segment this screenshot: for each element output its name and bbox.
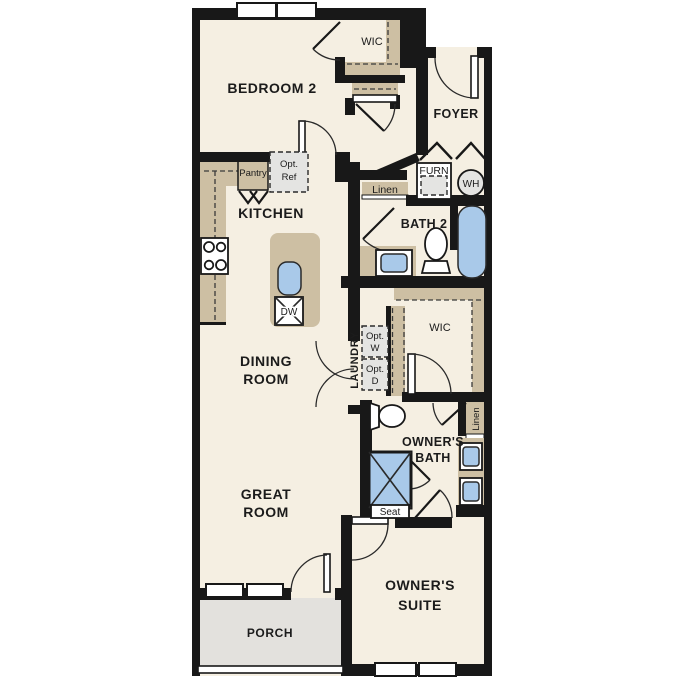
- label-pantry: Pantry: [239, 168, 267, 179]
- label-bedroom2: BEDROOM 2: [227, 80, 316, 96]
- label-porch: PORCH: [247, 626, 293, 640]
- label-foyer: FOYER: [433, 107, 478, 121]
- label-wic-bedroom: WIC: [361, 36, 382, 48]
- label-great-1: GREAT: [241, 486, 291, 502]
- stove-burner-4: [216, 260, 226, 270]
- label-suite-2: SUITE: [398, 597, 442, 613]
- porch-door-leaf: [324, 554, 330, 592]
- label-dishwasher: DW: [281, 307, 298, 318]
- window-great-a: [206, 584, 243, 597]
- label-bath2: BATH 2: [401, 217, 448, 231]
- wic-owners-shelf-top: [394, 288, 484, 300]
- label-obath-1: OWNER'S: [402, 435, 464, 449]
- label-dining-2: ROOM: [243, 371, 289, 387]
- bath2-sink: [381, 254, 407, 272]
- entry-door-leaf: [471, 56, 478, 98]
- hall-closet-door-leaf: [353, 95, 397, 102]
- bedroom2-door-leaf: [299, 121, 305, 155]
- wall-left: [192, 8, 200, 676]
- wall-linen-top: [355, 170, 407, 180]
- window-bedroom2-a: [237, 3, 276, 18]
- wic-owners-shelf-right: [472, 300, 484, 392]
- window-great-b: [247, 584, 283, 597]
- wall-vanity-south: [456, 505, 492, 517]
- floorplan-drawing: BEDROOM 2 WIC FOYER KITCHEN DINING ROOM …: [0, 0, 687, 687]
- bath2-toilet-bowl: [425, 228, 447, 260]
- wall-right: [484, 47, 492, 676]
- wall-hall-column: [348, 162, 360, 283]
- wall-suite-west: [341, 515, 352, 676]
- porch-railing: [198, 666, 343, 673]
- label-linen-hall: Linen: [372, 184, 398, 196]
- bath2-toilet-base: [422, 261, 450, 273]
- island-sink: [278, 262, 301, 295]
- stove-burner-2: [217, 243, 226, 252]
- furnace-inner: [421, 176, 447, 195]
- label-obath-2: BATH: [415, 451, 450, 465]
- owners-sink1: [463, 447, 479, 466]
- label-suite-1: OWNER'S: [385, 577, 455, 593]
- label-wic-owners: WIC: [429, 322, 450, 334]
- bathtub: [458, 206, 486, 278]
- label-laundry: LAUNDRY: [349, 331, 361, 389]
- label-optref-2: Ref: [282, 172, 297, 183]
- label-optd-2: D: [372, 376, 379, 387]
- label-optw-2: W: [371, 343, 380, 354]
- stove-burner-3: [205, 261, 214, 270]
- wall-foyer-left: [416, 58, 428, 155]
- label-shower-seat: Seat: [380, 507, 401, 518]
- wic-owners-door-leaf: [408, 354, 415, 394]
- label-dining-1: DINING: [240, 353, 292, 369]
- label-water-heater: WH: [463, 179, 480, 190]
- stove-burner-1: [204, 242, 214, 252]
- label-linen-owners: Linen: [471, 407, 482, 430]
- wall-tub-left: [450, 206, 458, 250]
- label-kitchen: KITCHEN: [238, 205, 304, 221]
- wall-foyer-top-right: [477, 47, 492, 58]
- label-great-2: ROOM: [243, 504, 289, 520]
- owners-toilet-bowl: [379, 405, 405, 427]
- floorplan-canvas: BEDROOM 2 WIC FOYER KITCHEN DINING ROOM …: [0, 0, 687, 687]
- label-furnace: FURN: [419, 165, 448, 177]
- kitchen-counter-end: [200, 322, 226, 325]
- window-suite-b: [419, 663, 456, 676]
- window-bedroom2-b: [277, 3, 316, 18]
- owners-toilet-tank: [370, 403, 379, 430]
- owners-sink2: [463, 482, 479, 501]
- window-suite-a: [375, 663, 416, 676]
- wall-porch-top-right: [335, 588, 341, 600]
- label-optw-1: Opt.: [366, 331, 384, 342]
- wall-bedroom2-corner: [335, 152, 350, 182]
- wall-wic-bottom: [335, 75, 405, 83]
- label-optd-1: Opt.: [366, 364, 384, 375]
- label-optref-1: Opt.: [280, 159, 298, 170]
